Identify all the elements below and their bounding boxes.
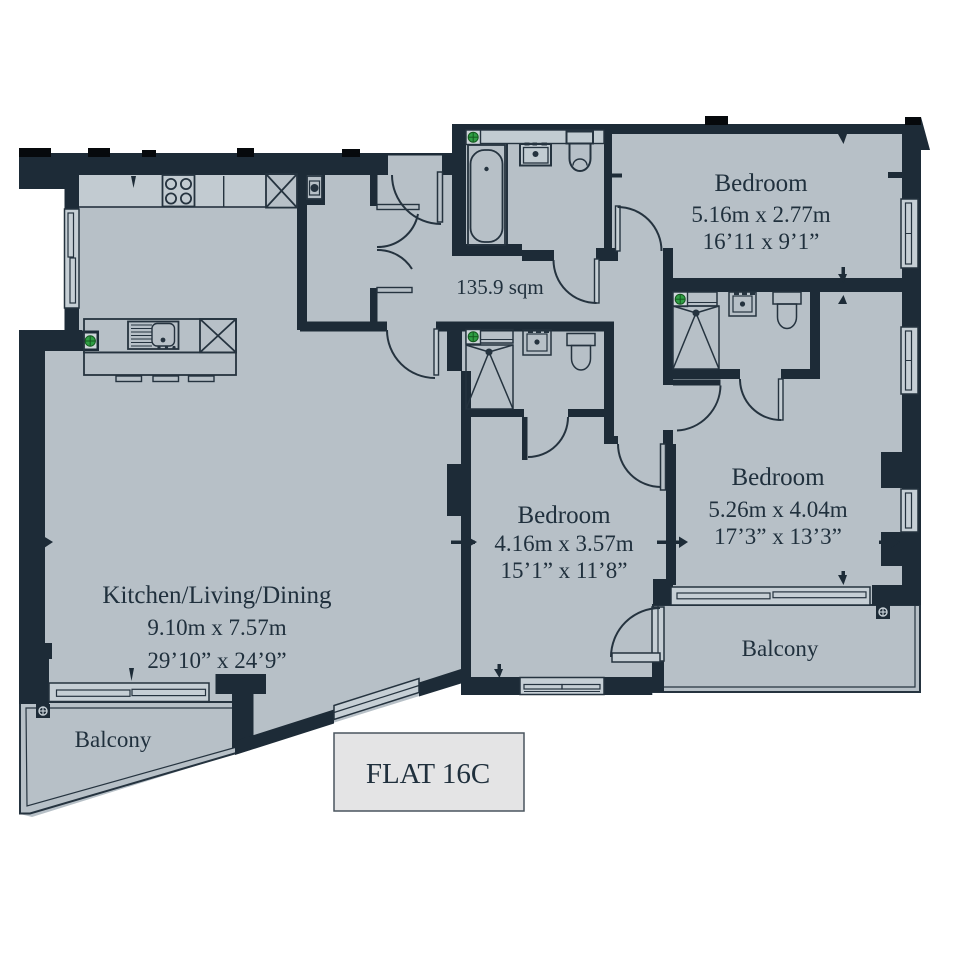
svg-text:Bedroom: Bedroom (731, 464, 825, 491)
svg-text:Kitchen/Living/Dining: Kitchen/Living/Dining (102, 582, 332, 609)
svg-text:Balcony: Balcony (742, 636, 819, 661)
svg-text:135.9 sqm: 135.9 sqm (456, 275, 544, 299)
svg-text:17’3” x 13’3”: 17’3” x 13’3” (714, 524, 842, 549)
svg-text:15’1” x 11’8”: 15’1” x 11’8” (501, 558, 628, 583)
svg-text:Balcony: Balcony (75, 727, 152, 752)
svg-text:5.16m x 2.77m: 5.16m x 2.77m (691, 202, 830, 227)
svg-text:29’10” x 24’9”: 29’10” x 24’9” (147, 648, 286, 673)
svg-text:16’11 x 9’1”: 16’11 x 9’1” (703, 229, 820, 254)
svg-text:Bedroom: Bedroom (714, 170, 808, 197)
svg-text:Bedroom: Bedroom (517, 502, 611, 529)
svg-text:9.10m x 7.57m: 9.10m x 7.57m (147, 615, 286, 640)
svg-text:5.26m x 4.04m: 5.26m x 4.04m (708, 497, 847, 522)
svg-text:4.16m x 3.57m: 4.16m x 3.57m (494, 531, 633, 556)
svg-text:FLAT 16C: FLAT 16C (366, 758, 490, 790)
